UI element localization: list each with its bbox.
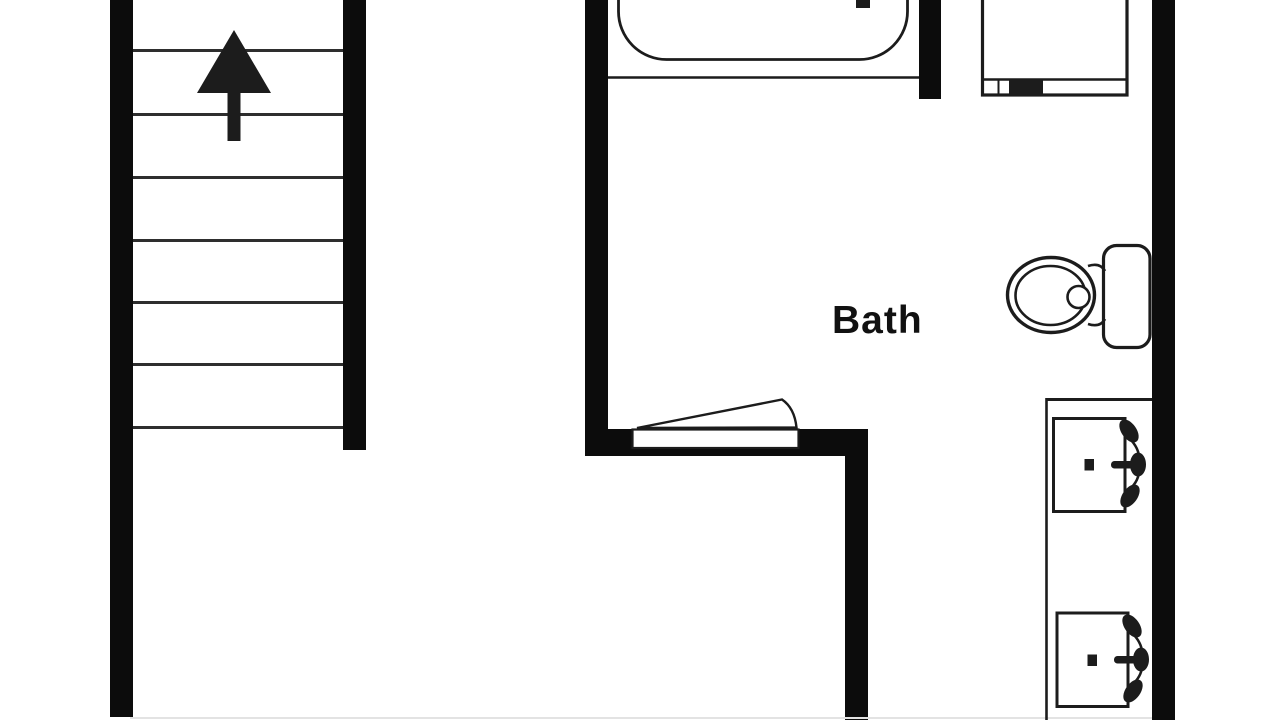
stair-step-line bbox=[133, 363, 343, 366]
plan-svg bbox=[0, 0, 1280, 720]
stair-step-line bbox=[133, 176, 343, 179]
toilet-tank bbox=[1104, 246, 1151, 348]
door-threshold-panel bbox=[633, 430, 799, 449]
appliance bbox=[983, 0, 1128, 95]
appliance-body bbox=[983, 0, 1128, 95]
stair-step-line bbox=[133, 426, 343, 429]
stair-step-line bbox=[133, 239, 343, 242]
sink-drain-icon bbox=[1088, 655, 1098, 667]
walls-layer bbox=[110, 0, 1175, 720]
stair-step-line bbox=[133, 301, 343, 304]
floor-plan-page: Bath bbox=[0, 0, 1280, 720]
bath-left-wall bbox=[585, 0, 608, 456]
vanity-counter bbox=[1047, 398, 1153, 720]
tub-right-wall-stub bbox=[919, 0, 941, 99]
sink-1 bbox=[1054, 416, 1147, 511]
stair-left-wall bbox=[110, 0, 133, 717]
toilet bbox=[1008, 246, 1151, 348]
bath-lower-wall bbox=[845, 450, 868, 720]
stair-right-wall bbox=[343, 0, 366, 450]
door-leaf bbox=[637, 400, 797, 429]
stairs-up-arrow-icon bbox=[197, 30, 271, 141]
room-label-bath: Bath bbox=[832, 299, 923, 343]
bathtub-faucet-icon bbox=[856, 0, 870, 8]
bathtub bbox=[608, 0, 919, 78]
right-outer-wall bbox=[1152, 0, 1175, 720]
toilet-flush-icon bbox=[1068, 286, 1090, 308]
bottom-faint-wall-line bbox=[130, 717, 1152, 719]
sink-2 bbox=[1057, 611, 1149, 706]
bath-door bbox=[633, 400, 799, 449]
sink-drain-icon bbox=[1085, 459, 1095, 471]
appliance-panel-box bbox=[1009, 81, 1043, 96]
bathtub-basin bbox=[619, 0, 908, 60]
